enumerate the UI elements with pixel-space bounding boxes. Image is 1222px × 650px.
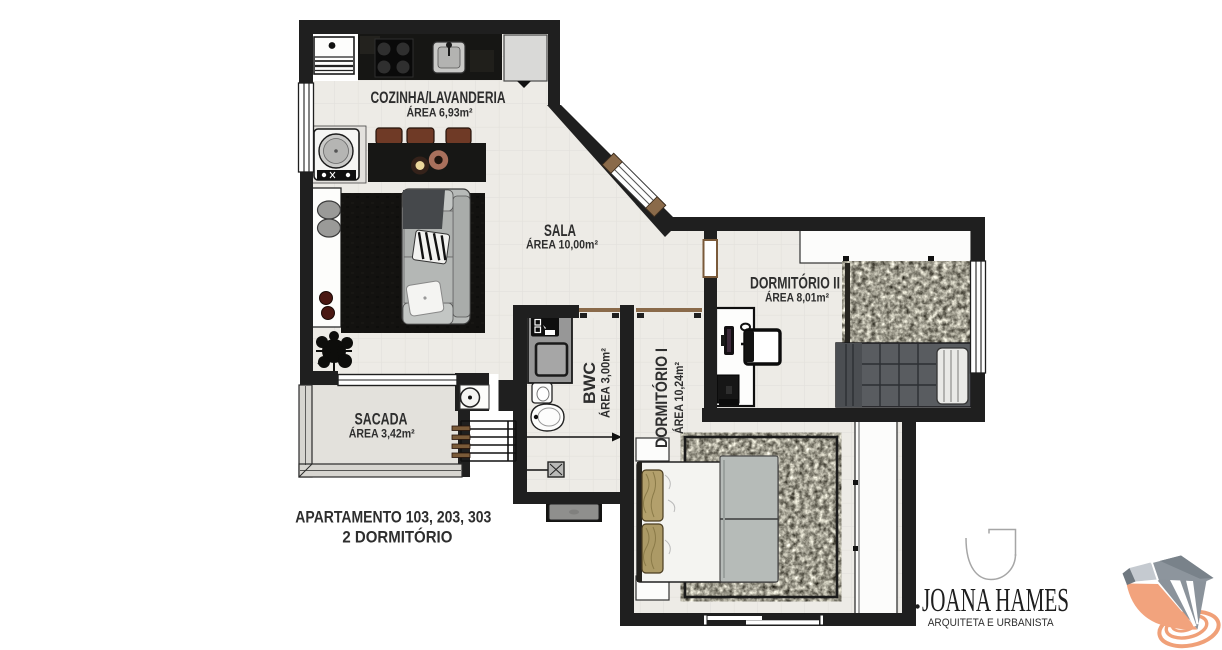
svg-text:ÁREA 8,01m²: ÁREA 8,01m² xyxy=(765,290,829,305)
svg-text:BWC: BWC xyxy=(581,362,599,404)
svg-text:APARTAMENTO 103, 203, 303: APARTAMENTO 103, 203, 303 xyxy=(295,508,491,527)
svg-text:ARQUITETA E URBANISTA: ARQUITETA E URBANISTA xyxy=(928,617,1055,629)
svg-text:2 DORMITÓRIO: 2 DORMITÓRIO xyxy=(342,528,452,547)
svg-text:ÁREA 10,24m²: ÁREA 10,24m² xyxy=(671,362,686,434)
svg-text:ÁREA 3,00m²: ÁREA 3,00m² xyxy=(598,348,613,418)
svg-text:JOANA HAMES: JOANA HAMES xyxy=(922,582,1069,619)
svg-text:ÁREA 10,00m²: ÁREA 10,00m² xyxy=(526,237,598,252)
svg-text:ÁREA 6,93m²: ÁREA 6,93m² xyxy=(407,104,473,119)
svg-text:COZINHA/LAVANDERIA: COZINHA/LAVANDERIA xyxy=(371,89,506,107)
svg-text:ÁREA 3,42m²: ÁREA 3,42m² xyxy=(349,426,415,441)
svg-text:DORMITÓRIO I: DORMITÓRIO I xyxy=(652,348,671,448)
